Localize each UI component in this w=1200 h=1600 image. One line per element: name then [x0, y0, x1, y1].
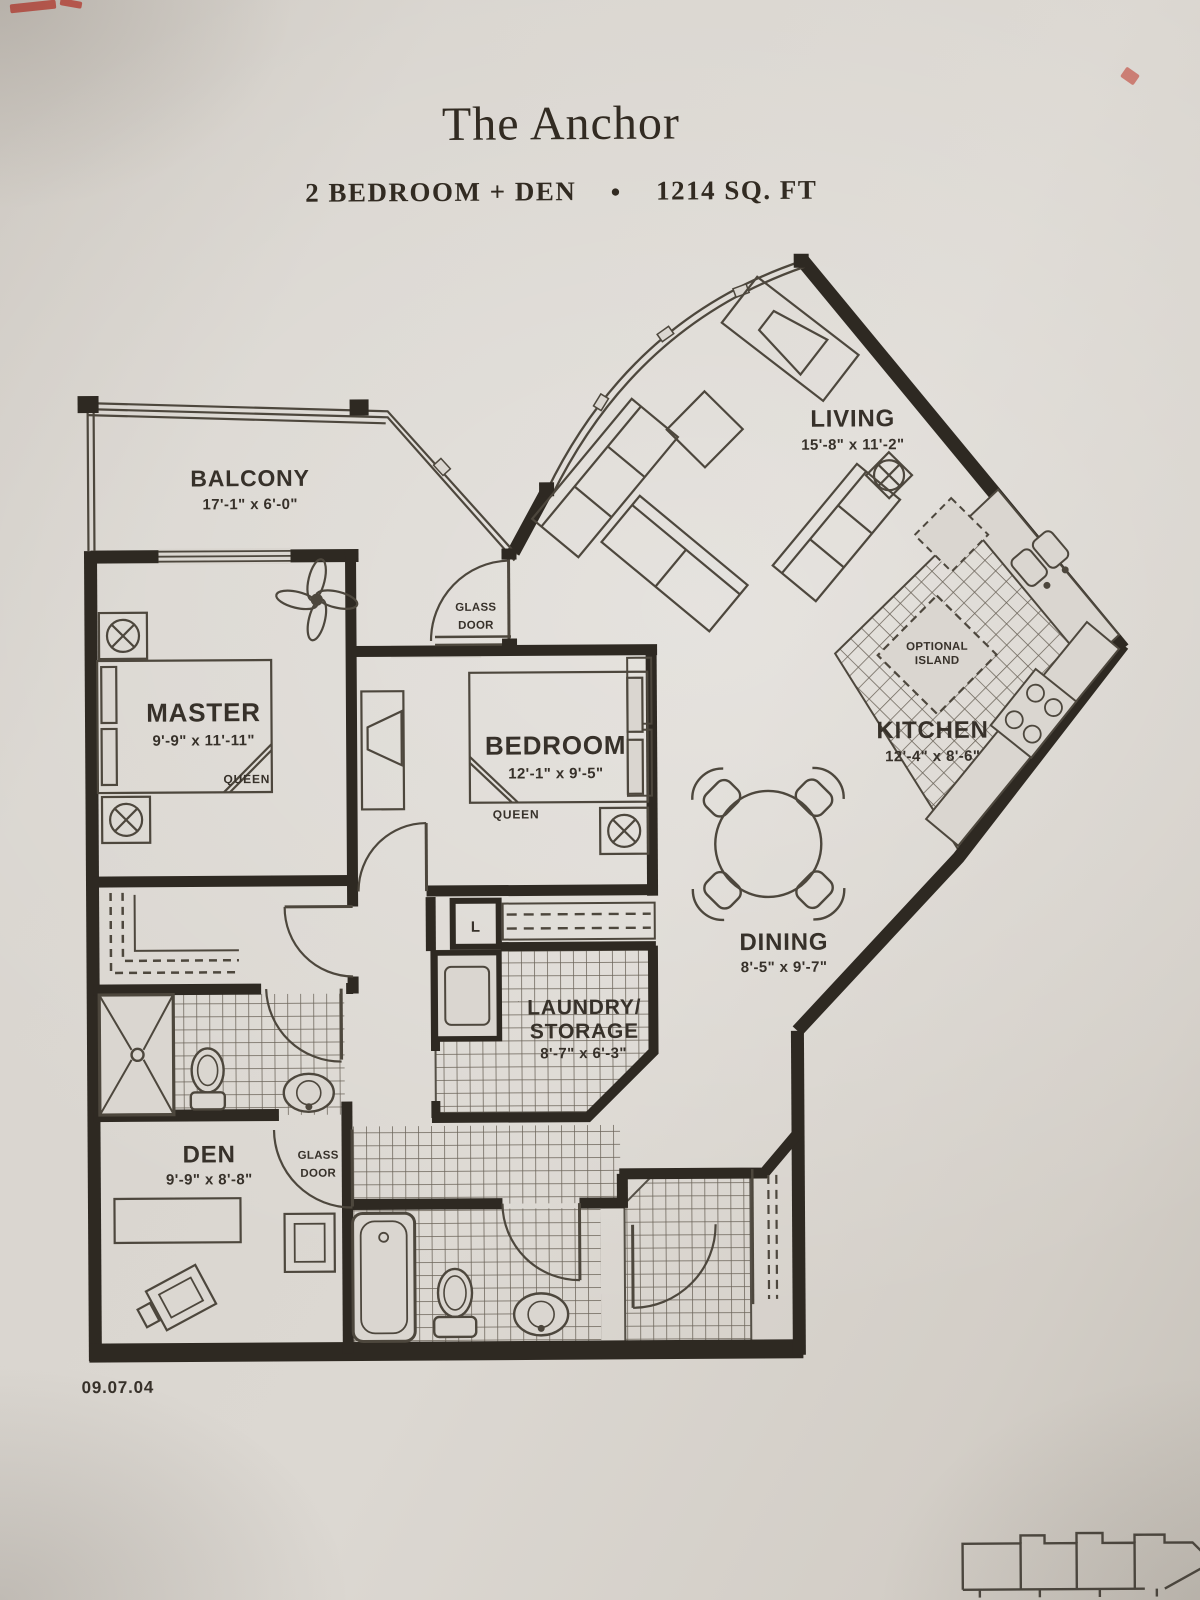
- sectional-sofa-chaise: [602, 496, 748, 632]
- second-bath-north-wall: [347, 1203, 624, 1205]
- laundry-north-wall: [501, 946, 656, 947]
- dining-chair: [685, 762, 747, 824]
- floor-plan-photo: The Anchor 2 BEDROOM + DEN●1214 SQ. FT: [0, 0, 1200, 1600]
- den-side-table: [285, 1214, 335, 1272]
- coffee-table: [667, 391, 743, 467]
- nightstand-lamp-icon: [102, 797, 150, 843]
- bedroom-north-wall: [351, 650, 657, 652]
- laundry-label-1: LAUNDRY/: [527, 996, 641, 1020]
- dresser-tv-icon: [361, 691, 404, 809]
- dining-dims: 8'-5" x 9'-7": [741, 959, 828, 977]
- linen-closet-label: L: [471, 919, 481, 936]
- master-label: MASTER: [146, 697, 261, 728]
- master-walkin-closet: [111, 892, 239, 973]
- balcony-glass-door-label-2: DOOR: [458, 620, 494, 632]
- entry-north-wall: [619, 1132, 799, 1174]
- optional-island-label-1: OPTIONAL: [906, 641, 968, 653]
- bedroom-bed-size-label: QUEEN: [493, 807, 540, 821]
- master-dims: 9'-9" x 11'-11": [152, 732, 255, 750]
- bedroom-furniture: [361, 672, 648, 856]
- pillow: [628, 740, 643, 794]
- master-bath-north-wall: [93, 989, 353, 991]
- dining-table: [715, 791, 822, 898]
- kitchen-dims: 12'-4" x 8'-6": [885, 748, 980, 766]
- den-computer-icon: [132, 1265, 216, 1338]
- nightstand-lamp-icon: [99, 613, 147, 659]
- dining-chair: [788, 761, 850, 823]
- tiled-floors: [94, 495, 1123, 1348]
- dining-furniture: [685, 761, 851, 927]
- floor-plan-sheet: The Anchor 2 BEDROOM + DEN●1214 SQ. FT: [0, 0, 1200, 1600]
- toilet-icon: [191, 1048, 225, 1109]
- dining-chair: [789, 864, 851, 926]
- master-bed-size-label: QUEEN: [223, 772, 270, 786]
- balcony-glass-door-label-1: GLASS: [455, 602, 496, 614]
- master-bedroom-door: [285, 907, 353, 977]
- dining-chair: [686, 865, 748, 927]
- sink-icon: [284, 1074, 334, 1112]
- laundry-appliances: [435, 953, 500, 1039]
- den-east-wall: [347, 1102, 349, 1354]
- den-label: DEN: [183, 1141, 236, 1168]
- laundry-label-2: STORAGE: [530, 1020, 639, 1044]
- bedroom-south-wall: [427, 890, 653, 891]
- bathtub-icon: [353, 1213, 416, 1341]
- date-stamp: 09.07.04: [82, 1378, 155, 1397]
- bedroom-door: [358, 823, 426, 891]
- hallway-floor: [352, 1125, 620, 1205]
- south-wall: [89, 1349, 803, 1353]
- optional-island-label-2: ISLAND: [915, 655, 960, 667]
- floor-plan-drawing: BALCONY 17'-1" x 6'-0" LIVING 15'-8" x 1…: [0, 0, 1200, 1600]
- laundry-dims: 8'-7" x 6'-3": [540, 1045, 627, 1063]
- den-furniture: [114, 1198, 335, 1338]
- nightstand-lamp-icon: [600, 808, 648, 854]
- dining-label: DINING: [739, 929, 828, 957]
- railing-post: [350, 399, 369, 415]
- pillow: [102, 729, 117, 785]
- master-south-wall: [92, 881, 352, 883]
- den-desk: [114, 1198, 240, 1243]
- living-west-wall-stub: [513, 490, 547, 552]
- living-dims: 15'-8" x 11'-2": [801, 436, 904, 454]
- entry-coat-closet: [752, 1169, 777, 1304]
- sink-icon: [514, 1293, 568, 1335]
- den-side-table-inner: [295, 1224, 325, 1262]
- living-label: LIVING: [810, 405, 895, 433]
- kitchen-label: KITCHEN: [876, 717, 988, 745]
- balcony-label: BALCONY: [190, 465, 309, 492]
- railing-post: [78, 396, 99, 413]
- balcony-dims: 17'-1" x 6'-0": [202, 496, 297, 514]
- den-dims: 9'-9" x 8'-8": [166, 1171, 253, 1189]
- bedroom-dims: 12'-1" x 9'-5": [508, 765, 603, 783]
- entry-east-wall: [797, 1031, 799, 1355]
- bedroom-reach-in-closet: [503, 903, 655, 940]
- pillow: [101, 667, 116, 723]
- entry-floor: [624, 1177, 751, 1343]
- den-glass-door-label-2: DOOR: [300, 1168, 336, 1180]
- bedroom-label: BEDROOM: [485, 730, 627, 761]
- balcony-glass-door: [430, 549, 517, 651]
- pillow: [627, 678, 642, 732]
- den-glass-door-label-1: GLASS: [298, 1150, 339, 1162]
- living-curved-window: [538, 254, 810, 497]
- master-window: [158, 548, 290, 565]
- shower-icon: [99, 995, 174, 1115]
- toilet-icon: [434, 1269, 476, 1337]
- building-key-plan: [962, 1532, 1200, 1597]
- master-east-wall: [350, 550, 353, 994]
- west-wall: [90, 551, 95, 1361]
